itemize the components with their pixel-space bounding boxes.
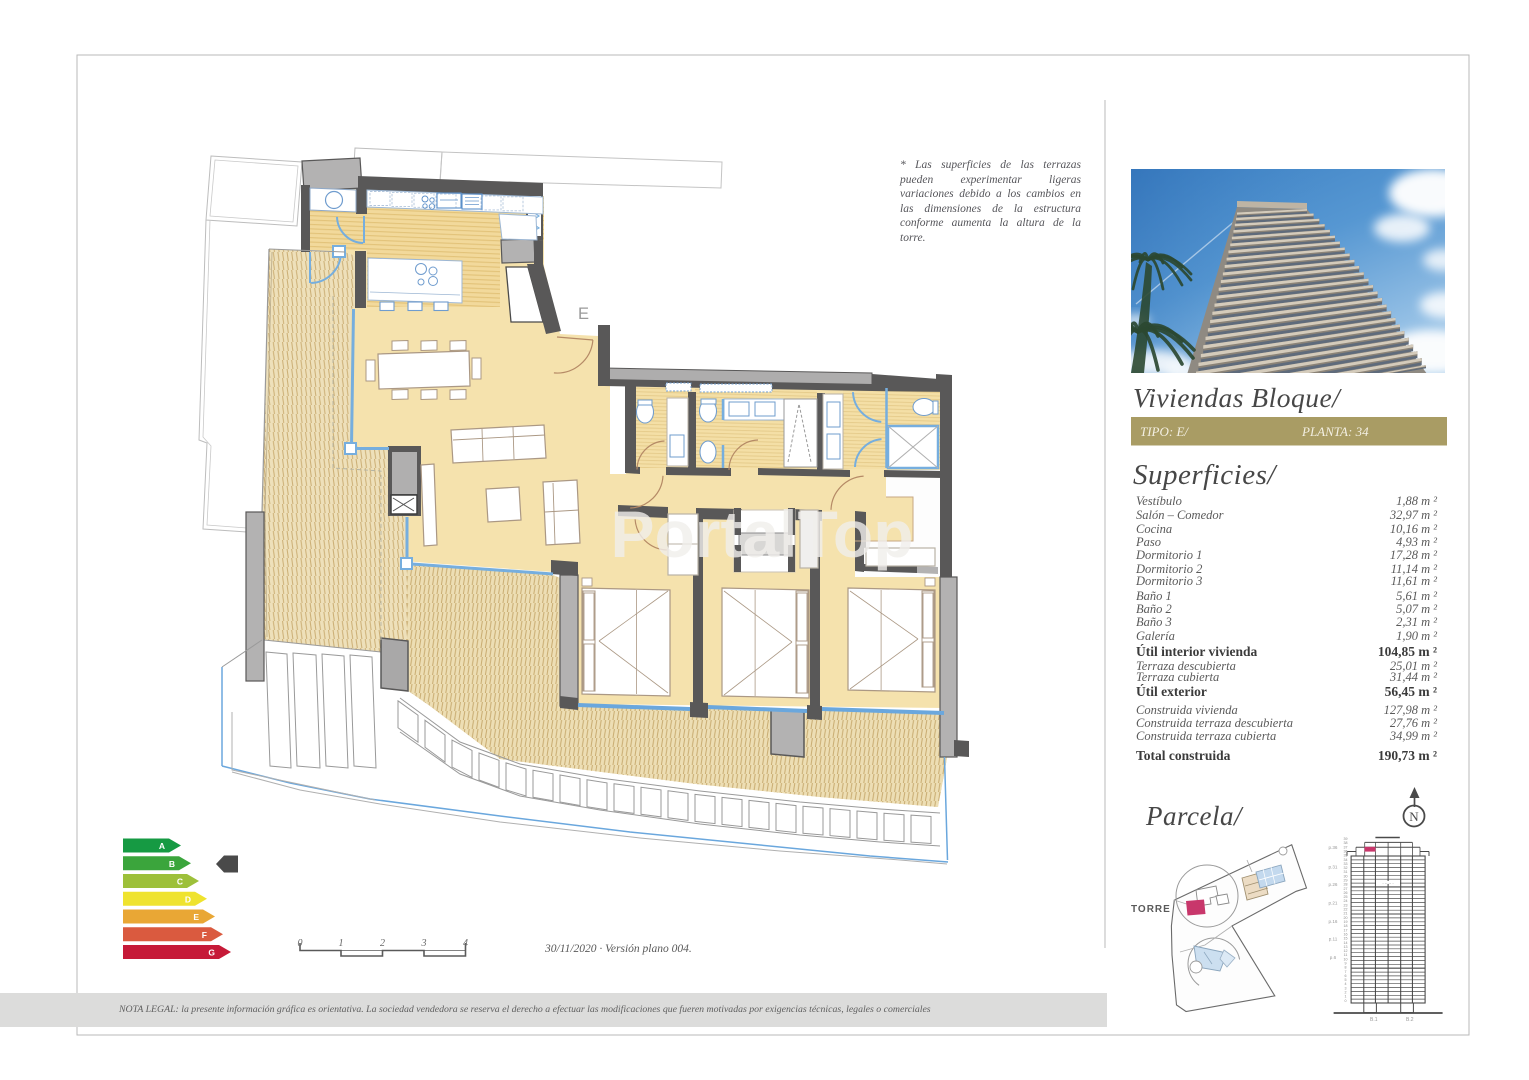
svg-text:G: G <box>208 948 215 958</box>
svg-text:F: F <box>202 930 207 940</box>
svg-text:A: A <box>159 841 165 851</box>
svg-text:p.16: p.16 <box>1329 919 1338 924</box>
svg-text:p.36: p.36 <box>1329 845 1338 850</box>
svg-text:B.1: B.1 <box>1370 1017 1378 1023</box>
svg-text:p.31: p.31 <box>1329 865 1338 870</box>
svg-text:PortalTop: PortalTop <box>610 497 913 571</box>
svg-text:B: B <box>169 859 175 869</box>
svg-text:B.2: B.2 <box>1406 1017 1414 1023</box>
svg-text:p.6: p.6 <box>1330 955 1337 960</box>
svg-text:p.21: p.21 <box>1329 901 1338 906</box>
svg-text:D: D <box>185 894 191 904</box>
svg-text:0: 0 <box>1345 999 1347 1003</box>
svg-text:E: E <box>193 912 199 922</box>
svg-text:C: C <box>177 877 183 887</box>
svg-text:p.26: p.26 <box>1329 882 1338 887</box>
svg-text:0: 0 <box>298 938 303 949</box>
svg-text:p.11: p.11 <box>1329 937 1338 942</box>
svg-text:1: 1 <box>339 938 344 949</box>
svg-text:4: 4 <box>463 938 468 949</box>
svg-text:- -- -- -: - -- -- - <box>1382 881 1394 886</box>
svg-text:2: 2 <box>380 938 385 949</box>
svg-text:E: E <box>578 305 589 323</box>
svg-text:3: 3 <box>421 938 427 949</box>
svg-text:N: N <box>1409 809 1419 824</box>
